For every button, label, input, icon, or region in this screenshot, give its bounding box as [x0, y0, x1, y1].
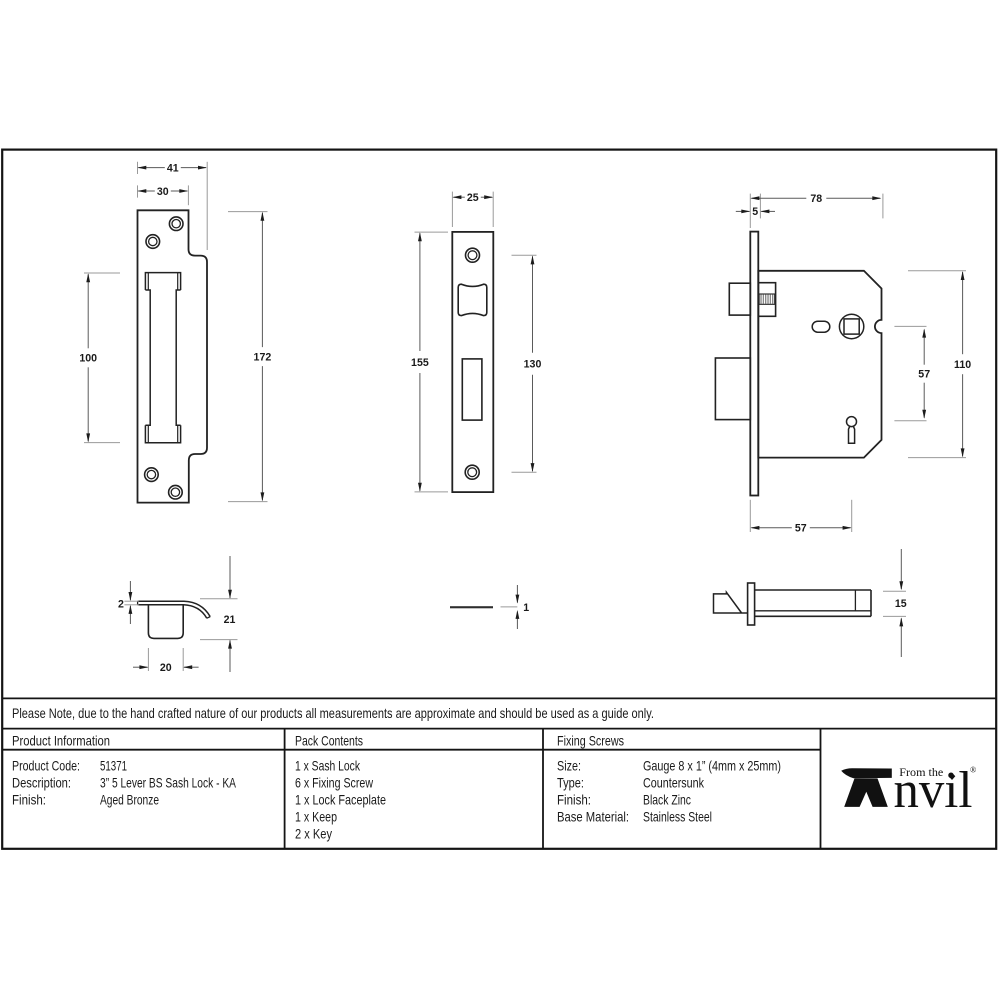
svg-text:Type:: Type: — [557, 775, 584, 790]
svg-text:Gauge 8 x 1” (4mm x 25mm): Gauge 8 x 1” (4mm x 25mm) — [643, 758, 781, 773]
svg-text:1: 1 — [523, 602, 529, 614]
svg-text:78: 78 — [810, 193, 822, 205]
svg-text:Finish:: Finish: — [12, 792, 46, 807]
svg-text:155: 155 — [411, 357, 429, 369]
svg-text:Stainless Steel: Stainless Steel — [643, 809, 712, 824]
svg-text:Please Note, due to the hand c: Please Note, due to the hand crafted nat… — [12, 706, 654, 721]
svg-text:Product Code:: Product Code: — [12, 758, 80, 773]
svg-text:6 x Fixing Screw: 6 x Fixing Screw — [295, 775, 373, 790]
svg-text:From the: From the — [899, 767, 943, 779]
svg-text:20: 20 — [160, 662, 172, 674]
svg-text:5: 5 — [752, 206, 758, 218]
svg-text:15: 15 — [895, 598, 907, 610]
svg-text:57: 57 — [795, 523, 807, 535]
svg-text:Countersunk: Countersunk — [643, 775, 704, 790]
svg-text:21: 21 — [224, 614, 236, 626]
svg-text:®: ® — [970, 765, 976, 774]
svg-text:1 x Sash Lock: 1 x Sash Lock — [295, 758, 360, 773]
svg-text:100: 100 — [79, 353, 97, 365]
svg-text:Description:: Description: — [12, 775, 71, 790]
svg-text:57: 57 — [918, 369, 930, 381]
svg-text:1 x Keep: 1 x Keep — [295, 809, 337, 824]
svg-text:110: 110 — [954, 359, 971, 371]
svg-text:51371: 51371 — [100, 758, 127, 773]
svg-text:41: 41 — [167, 162, 179, 174]
svg-text:25: 25 — [467, 192, 479, 204]
svg-text:3” 5 Lever BS Sash Lock - KA: 3” 5 Lever BS Sash Lock - KA — [100, 775, 237, 790]
svg-text:Pack Contents: Pack Contents — [295, 733, 363, 748]
svg-text:Product Information: Product Information — [12, 733, 110, 748]
svg-text:130: 130 — [524, 359, 542, 371]
svg-text:2: 2 — [118, 598, 124, 610]
svg-text:Fixing Screws: Fixing Screws — [557, 733, 624, 748]
svg-text:30: 30 — [157, 186, 169, 198]
svg-text:2 x Key: 2 x Key — [295, 826, 332, 841]
svg-text:Black Zinc: Black Zinc — [643, 792, 691, 807]
svg-text:1 x Lock Faceplate: 1 x Lock Faceplate — [295, 792, 386, 807]
svg-text:Base Material:: Base Material: — [557, 809, 629, 824]
svg-text:Finish:: Finish: — [557, 792, 591, 807]
svg-text:172: 172 — [254, 351, 272, 363]
svg-text:Aged Bronze: Aged Bronze — [100, 792, 159, 807]
svg-text:Size:: Size: — [557, 758, 581, 773]
